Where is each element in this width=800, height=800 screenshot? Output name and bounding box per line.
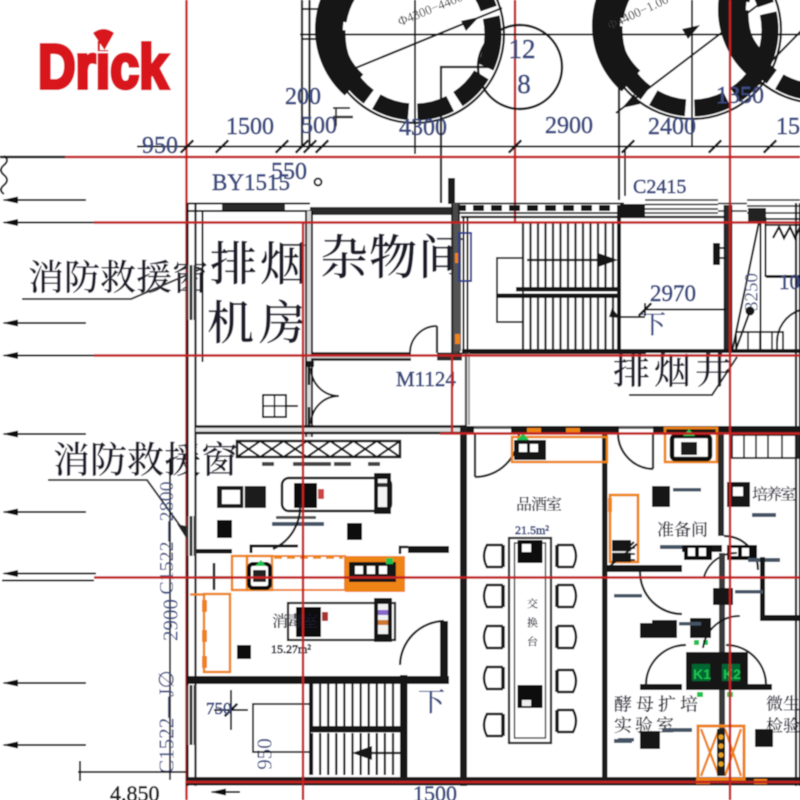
- svg-text:10: 10: [779, 270, 800, 294]
- svg-text:3250: 3250: [742, 273, 763, 311]
- svg-text:1350: 1350: [716, 83, 764, 109]
- svg-text:C2415: C2415: [633, 176, 686, 198]
- svg-text:750: 750: [206, 699, 232, 718]
- svg-text:2900: 2900: [158, 599, 182, 641]
- svg-text:950: 950: [252, 738, 276, 770]
- svg-text:1500: 1500: [226, 114, 274, 140]
- svg-text:8: 8: [517, 69, 531, 99]
- svg-text:950: 950: [142, 133, 178, 159]
- svg-text:12: 12: [509, 34, 536, 64]
- svg-text:BY1515: BY1515: [212, 170, 290, 195]
- svg-text:2400: 2400: [648, 114, 696, 140]
- svg-text:K2: K2: [723, 666, 741, 682]
- svg-text:C1522—J∅: C1522—J∅: [154, 670, 178, 773]
- svg-text:200: 200: [285, 84, 321, 110]
- svg-text:2970: 2970: [650, 281, 696, 306]
- svg-text:K1: K1: [693, 666, 711, 682]
- svg-text:21.5m²: 21.5m²: [515, 523, 549, 537]
- svg-text:4.850: 4.850: [110, 781, 160, 800]
- svg-text:2900: 2900: [545, 113, 593, 139]
- svg-text:4300: 4300: [399, 115, 447, 141]
- svg-text:15.27m²: 15.27m²: [271, 642, 311, 656]
- svg-text:M1124: M1124: [396, 367, 456, 391]
- svg-text:500: 500: [301, 113, 337, 139]
- svg-text:150: 150: [776, 114, 800, 140]
